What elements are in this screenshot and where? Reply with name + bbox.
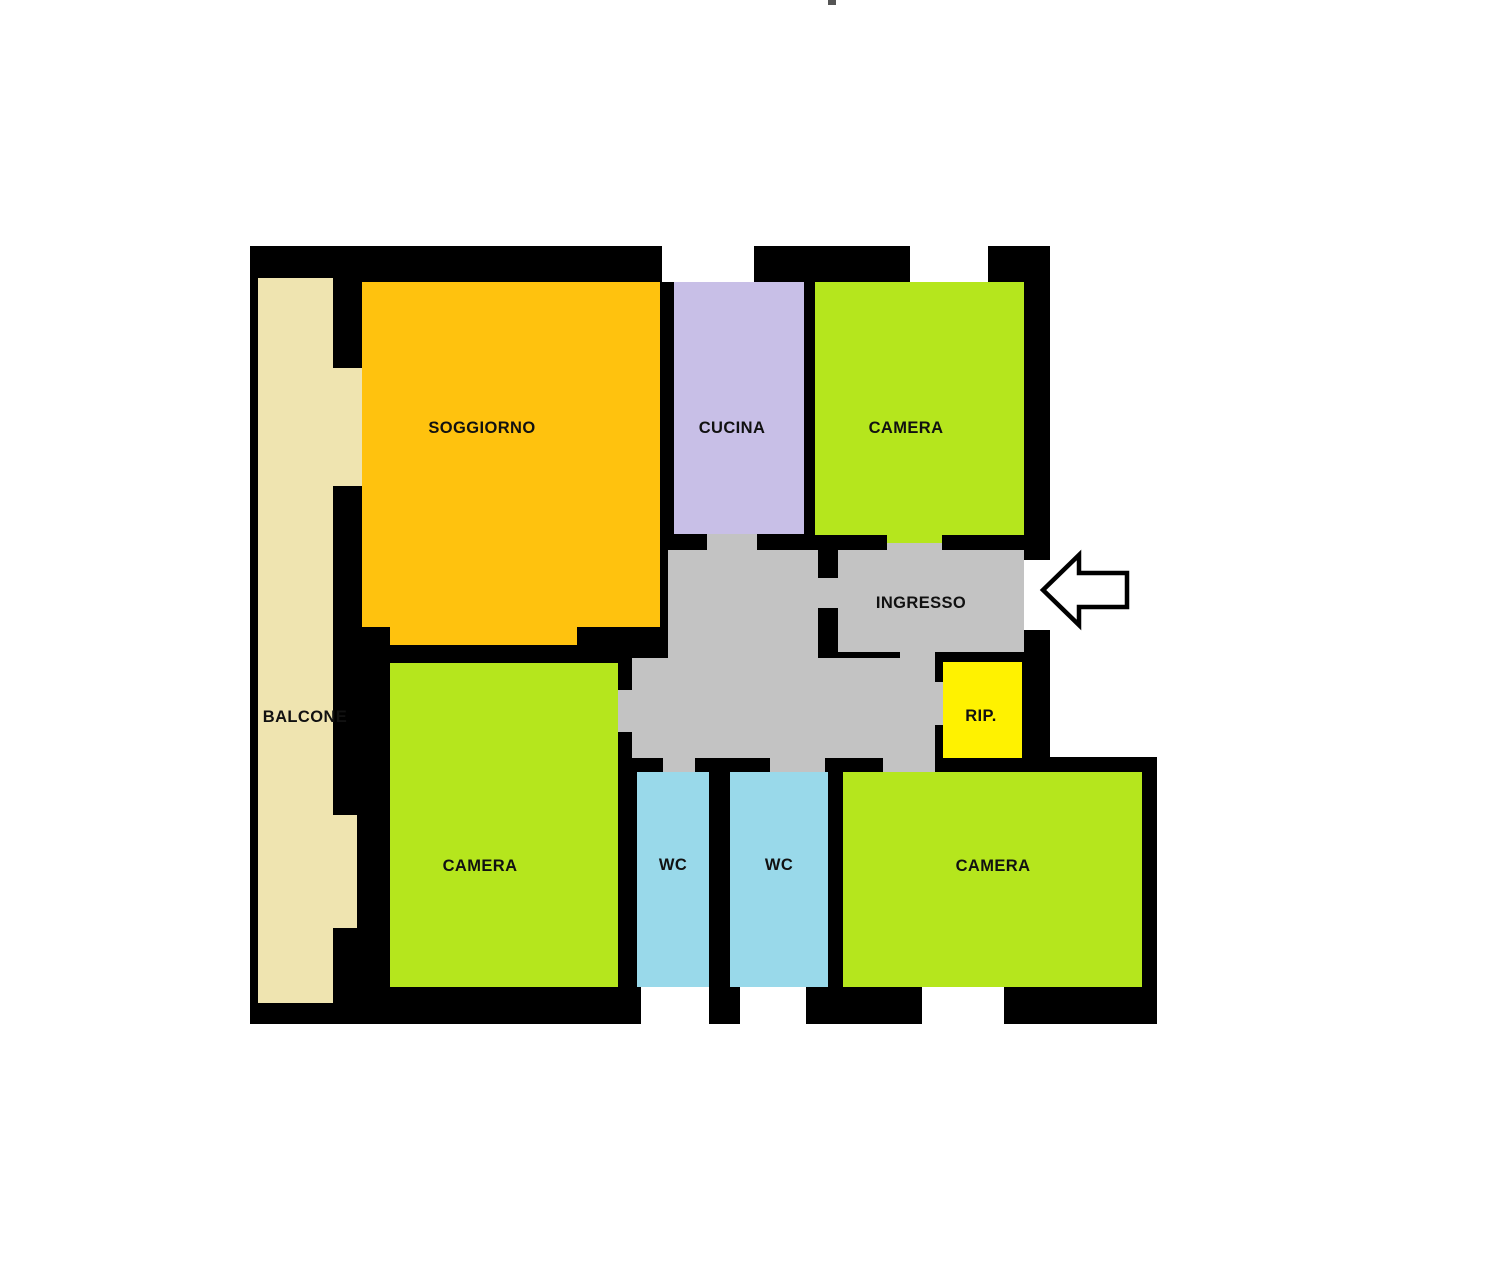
- room-soggiorno-notch: [390, 627, 577, 645]
- door-camera-sud: [883, 758, 935, 774]
- window-bottom-wc1: [641, 986, 709, 1024]
- floor-plan-canvas: SOGGIORNO CUCINA CAMERA INGRESSO BALCONE…: [0, 0, 1500, 1266]
- door-camera-ovest: [618, 690, 634, 732]
- balcone-opening-camera: [333, 815, 357, 928]
- room-balcone: [258, 278, 333, 1003]
- window-bottom-wc2: [740, 986, 806, 1024]
- room-wc-sinistro: [637, 772, 709, 987]
- room-camera-nord: [815, 282, 1024, 535]
- hallway-horizontal: [632, 658, 935, 758]
- door-ingresso-hall: [818, 578, 840, 608]
- room-camera-sud: [843, 772, 1142, 987]
- hallway-vertical: [668, 550, 818, 658]
- label-ripostiglio: RIP.: [965, 707, 997, 725]
- window-top-left: [662, 246, 754, 282]
- stray-mark: [828, 0, 836, 5]
- label-camera-nord: CAMERA: [869, 419, 944, 437]
- label-soggiorno: SOGGIORNO: [428, 419, 535, 437]
- door-wc-destro: [770, 758, 825, 774]
- balcone-opening-soggiorno: [333, 368, 362, 486]
- window-top-right: [910, 246, 988, 282]
- door-wc-sinistro: [663, 758, 695, 774]
- room-cucina: [674, 282, 804, 534]
- label-wc-destro: WC: [765, 856, 793, 874]
- label-camera-sud: CAMERA: [956, 857, 1031, 875]
- room-camera-ovest: [390, 663, 618, 987]
- floor-plan: SOGGIORNO CUCINA CAMERA INGRESSO BALCONE…: [0, 0, 1500, 1266]
- window-bottom-camera: [922, 986, 1004, 1024]
- room-camera-nord-door-notch: [887, 535, 942, 543]
- room-soggiorno: [362, 282, 660, 627]
- label-cucina: CUCINA: [699, 419, 766, 437]
- room-wc-destro: [730, 772, 828, 987]
- label-camera-ovest: CAMERA: [443, 857, 518, 875]
- label-ingresso: INGRESSO: [876, 594, 966, 612]
- label-wc-sinistro: WC: [659, 856, 687, 874]
- door-cucina: [707, 534, 757, 554]
- label-balcone: BALCONE: [263, 708, 347, 726]
